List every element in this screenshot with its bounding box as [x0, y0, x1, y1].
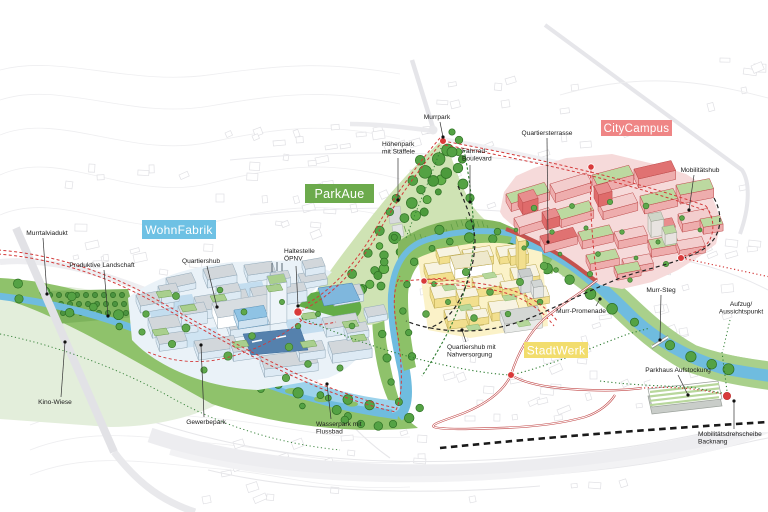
svg-text:Mobilitätshub: Mobilitätshub: [681, 167, 720, 174]
svg-text:Quartiershub mitNahversorgung: Quartiershub mitNahversorgung: [447, 344, 496, 359]
svg-text:Murrpark: Murrpark: [424, 114, 451, 121]
svg-text:Murr-Promenade: Murr-Promenade: [556, 308, 606, 315]
svg-text:Gewerbepark: Gewerbepark: [186, 419, 226, 426]
svg-text:Höhenparkmit Stäffele: Höhenparkmit Stäffele: [382, 141, 415, 156]
svg-text:WohnFabrik: WohnFabrik: [145, 223, 213, 237]
svg-text:Murr-Steg: Murr-Steg: [646, 287, 676, 294]
svg-text:StadtWerk: StadtWerk: [527, 343, 586, 357]
svg-text:Parkhaus Aufstockung: Parkhaus Aufstockung: [645, 367, 711, 374]
svg-text:Produktive Landschaft: Produktive Landschaft: [69, 262, 134, 269]
svg-text:ParkAue: ParkAue: [314, 187, 364, 201]
svg-text:Murrtalviadukt: Murrtalviadukt: [26, 230, 68, 237]
svg-text:CityCampus: CityCampus: [604, 123, 670, 135]
svg-text:Quartiershub: Quartiershub: [182, 258, 220, 265]
svg-text:Kino-Wiese: Kino-Wiese: [38, 399, 72, 406]
svg-text:Quartiersterrasse: Quartiersterrasse: [522, 130, 573, 137]
